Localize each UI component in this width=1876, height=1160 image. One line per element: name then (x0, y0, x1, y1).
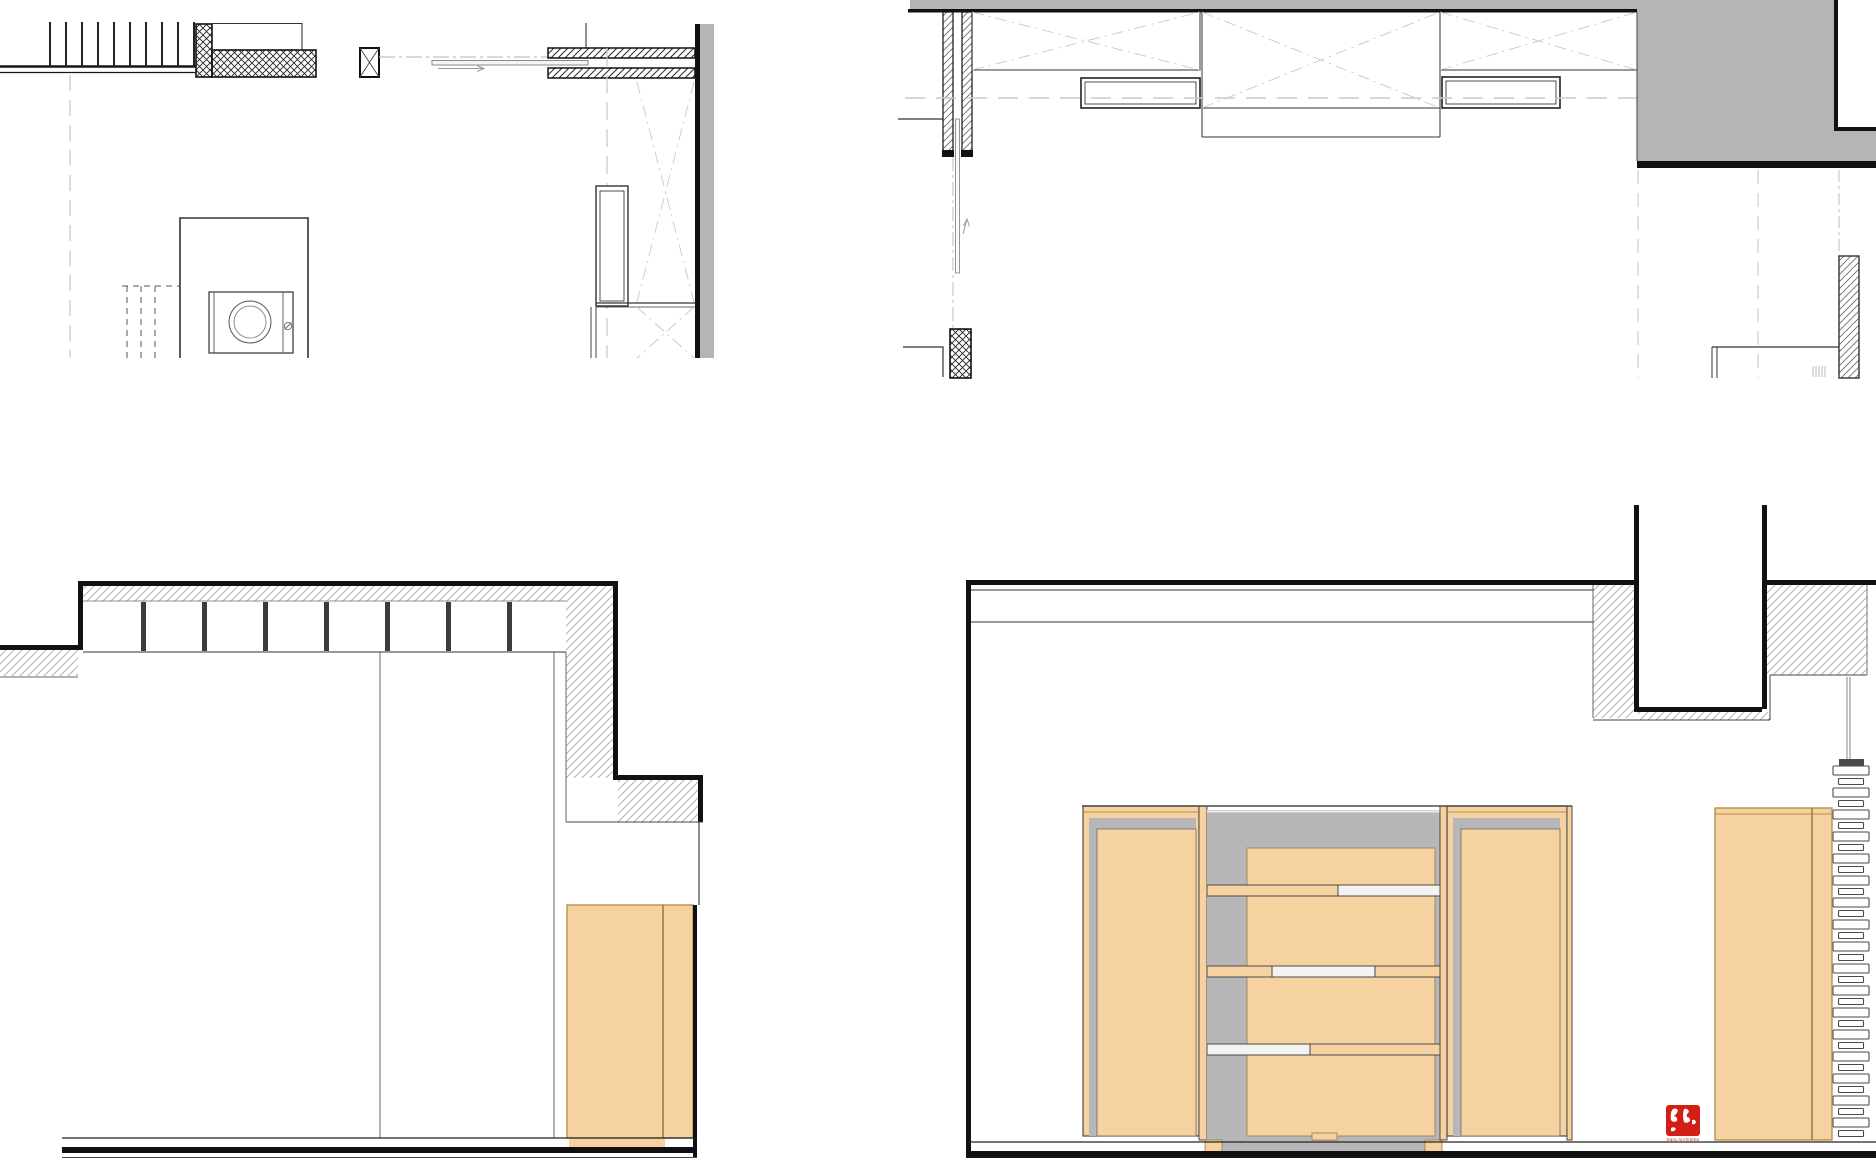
architect-seal: Sara Architetto (1666, 1105, 1700, 1142)
shelf-1 (1207, 885, 1440, 896)
outer-post-right (1567, 806, 1572, 1140)
shelf-box-right (1442, 77, 1560, 108)
right-tall-cabinet (1715, 808, 1832, 1140)
left-door (1083, 806, 1199, 1136)
middle-bay (1205, 810, 1442, 1152)
stack-ring (1839, 801, 1864, 807)
stack-ring (1839, 779, 1864, 785)
stack-ring (1839, 1065, 1864, 1071)
stack-ring (1839, 889, 1864, 895)
stack-ring (1833, 920, 1869, 929)
stack-ring (1833, 898, 1869, 907)
stack-ring (1839, 911, 1864, 917)
architectural-drawing: Sara Architetto (0, 0, 1876, 1160)
stack-ring (1833, 942, 1869, 951)
section-wall (695, 24, 714, 358)
stack-ring (1839, 1131, 1864, 1137)
seal-caption: Sara Architetto (1666, 1137, 1699, 1142)
stack-ring (1833, 1074, 1869, 1083)
shelf-3 (1207, 1044, 1440, 1055)
top-wall-band (908, 0, 1641, 13)
stack-ring (1833, 1096, 1869, 1105)
stack-ring (1833, 1052, 1869, 1061)
joist-tick (202, 602, 207, 651)
stack-ring (1833, 1118, 1869, 1127)
stack-ring (1839, 1109, 1864, 1115)
stack-ring (1833, 986, 1869, 995)
tall-wardrobe (567, 905, 697, 1158)
stack-ring (1839, 845, 1864, 851)
stack-ring (1833, 1008, 1869, 1017)
stack-ring (1839, 1021, 1864, 1027)
wall-end-post (360, 48, 379, 77)
stack-ring (1833, 766, 1869, 775)
right-door (1447, 806, 1567, 1136)
stack-ring (1833, 964, 1869, 973)
masonry-post (950, 329, 971, 378)
cad-sheet: Sara Architetto (0, 0, 1876, 1160)
stack-ring (1833, 876, 1869, 885)
joist-tick (263, 602, 268, 651)
partition-wall (1839, 256, 1859, 378)
shelving-unit (1082, 806, 1572, 1152)
stack-ring (1839, 823, 1864, 829)
bottom-rail (1312, 1133, 1337, 1140)
stack-ring (1839, 867, 1864, 873)
joist-tick (507, 602, 512, 651)
stack-ring (1839, 955, 1864, 961)
stack-ring (1833, 1030, 1869, 1039)
stack-ring (1833, 788, 1869, 797)
stack-ring (1833, 832, 1869, 841)
joist-tick (141, 602, 146, 651)
joist-tick (385, 602, 390, 651)
stack-ring (1839, 1087, 1864, 1093)
stack-ring (1839, 977, 1864, 983)
joist-tick (324, 602, 329, 651)
frame-post-left (1199, 806, 1207, 1140)
washing-machine (209, 292, 293, 353)
stack-ring (1833, 810, 1869, 819)
stack-ring (1839, 933, 1864, 939)
frame-post-right (1440, 806, 1447, 1140)
shelf-box-left (1081, 78, 1200, 108)
shelf-2 (1207, 966, 1440, 977)
joist-tick (446, 602, 451, 651)
column-casing (596, 186, 628, 306)
stack-ring (1839, 999, 1864, 1005)
stack-ring (1839, 1043, 1864, 1049)
stack-ring (1833, 854, 1869, 863)
